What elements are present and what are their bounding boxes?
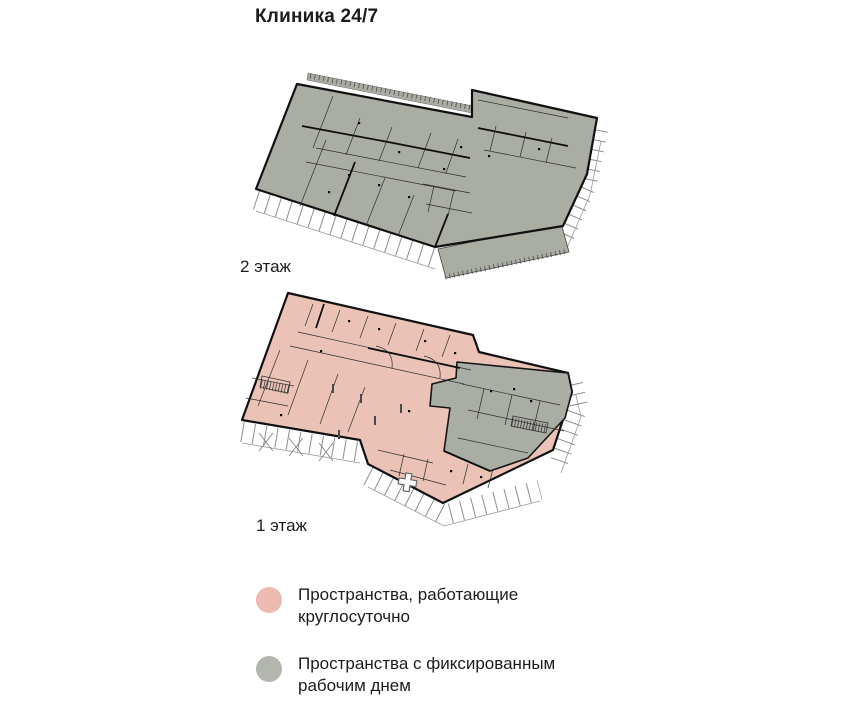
legend-swatch-fixed (256, 656, 282, 682)
floor-plan-first (228, 288, 620, 534)
legend-item-24h: Пространства, работающие круглосуточно (256, 584, 598, 629)
circle-swatch-icon (256, 656, 282, 682)
floor-label-first: 1 этаж (256, 516, 307, 536)
legend-swatch-24h (256, 587, 282, 613)
legend-label-fixed: Пространства с фиксированным рабочим дне… (298, 653, 598, 698)
floor-label-second: 2 этаж (240, 257, 291, 277)
page-title: Клиника 24/7 (255, 6, 378, 28)
legend: Пространства, работающие круглосуточно П… (256, 584, 598, 698)
page-root: Клиника 24/7 (0, 0, 864, 720)
floor-plan-second (238, 56, 630, 292)
circle-swatch-icon (256, 587, 282, 613)
legend-item-fixed: Пространства с фиксированным рабочим дне… (256, 653, 598, 698)
legend-label-24h: Пространства, работающие круглосуточно (298, 584, 598, 629)
